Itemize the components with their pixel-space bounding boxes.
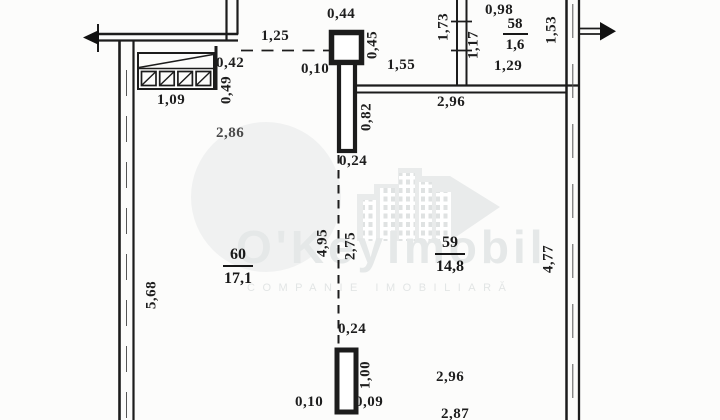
room-58-label: 58 1,6 — [485, 17, 545, 53]
dim-gap-bottom-right: 0,09 — [355, 395, 383, 410]
dim-room60-left-wall: 5,68 — [145, 281, 160, 309]
hatched-niche — [138, 53, 214, 89]
dim-room58-wall-right: 1,53 — [545, 16, 560, 44]
dim-divider-gap-top: 0,24 — [339, 154, 367, 169]
dim-room59-bottom-span: 2,96 — [436, 370, 464, 385]
dim-gap-pillar-left: 0,10 — [301, 62, 329, 77]
dim-room59-right-wall: 4,77 — [542, 245, 557, 273]
room-59-area: 14,8 — [420, 259, 480, 275]
dim-hall-span: 2,96 — [437, 95, 465, 110]
dim-room60-top-span: 2,86 — [216, 126, 244, 141]
room-60-number: 60 — [223, 247, 253, 267]
dim-opening-hall: 1,55 — [387, 58, 415, 73]
dim-divider-right: 2,75 — [344, 232, 359, 260]
dim-room58-length: 1,29 — [494, 59, 522, 74]
dim-pillar-depth: 0,45 — [366, 31, 381, 59]
dim-stub-bottom: 1,00 — [359, 361, 374, 389]
dim-divider-gap-bottom: 0,24 — [338, 322, 366, 337]
pillar-bottom — [337, 350, 356, 412]
floorplan-linework — [0, 0, 720, 420]
dim-niche-depth: 0,49 — [220, 76, 235, 104]
room-60-label: 60 17,1 — [208, 247, 268, 287]
wall-stub-top — [339, 63, 355, 151]
room-59-label: 59 14,8 — [420, 235, 480, 275]
room-58-number: 58 — [503, 17, 528, 35]
room-58-area: 1,6 — [485, 38, 545, 53]
dim-room58-wall-left: 1,73 — [437, 13, 452, 41]
room-59-number: 59 — [435, 235, 465, 255]
dim-room58-wall-inner: 1,17 — [467, 31, 482, 59]
room-60-area: 17,1 — [208, 271, 268, 287]
dim-pillar-width: 0,44 — [327, 7, 355, 22]
floor-plan: O'KeyImobil COMPANIE IMOBILIARĂ — [0, 0, 720, 420]
pillar-top — [332, 33, 362, 63]
dim-opening-left: 1,25 — [261, 29, 289, 44]
dim-stub-top: 0,82 — [360, 103, 375, 131]
dim-niche-width: 0,42 — [216, 56, 244, 71]
dim-niche-length: 1,09 — [157, 93, 185, 108]
dim-gap-bottom-left: 0,10 — [295, 395, 323, 410]
dim-bottom-cut-span: 2,87 — [441, 407, 469, 420]
dim-divider-left: 4,95 — [316, 229, 331, 257]
left-exit-arrow-icon — [83, 30, 99, 45]
